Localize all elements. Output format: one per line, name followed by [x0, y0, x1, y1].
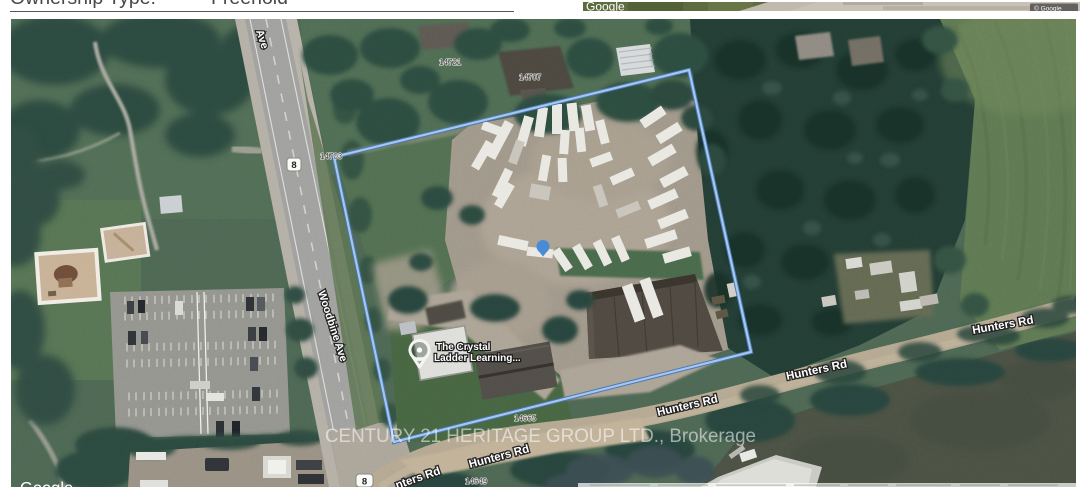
svg-text:8: 8: [291, 160, 296, 171]
svg-text:Google: Google: [586, 2, 625, 11]
svg-text:14707: 14707: [519, 73, 542, 82]
svg-text:14649: 14649: [465, 477, 488, 486]
svg-text:© Google: © Google: [1034, 5, 1062, 12]
svg-text:8: 8: [362, 477, 367, 487]
svg-text:Ladder Learning...: Ladder Learning...: [434, 353, 521, 364]
svg-text:14665: 14665: [514, 414, 537, 423]
svg-text:Google: Google: [20, 480, 73, 487]
svg-text:CENTURY 21 HERITAGE GROUP LTD.: CENTURY 21 HERITAGE GROUP LTD., Brokerag…: [325, 425, 756, 447]
svg-text:14703: 14703: [320, 152, 343, 161]
svg-text:14721: 14721: [439, 58, 462, 67]
svg-text:The Crystal: The Crystal: [436, 342, 491, 353]
